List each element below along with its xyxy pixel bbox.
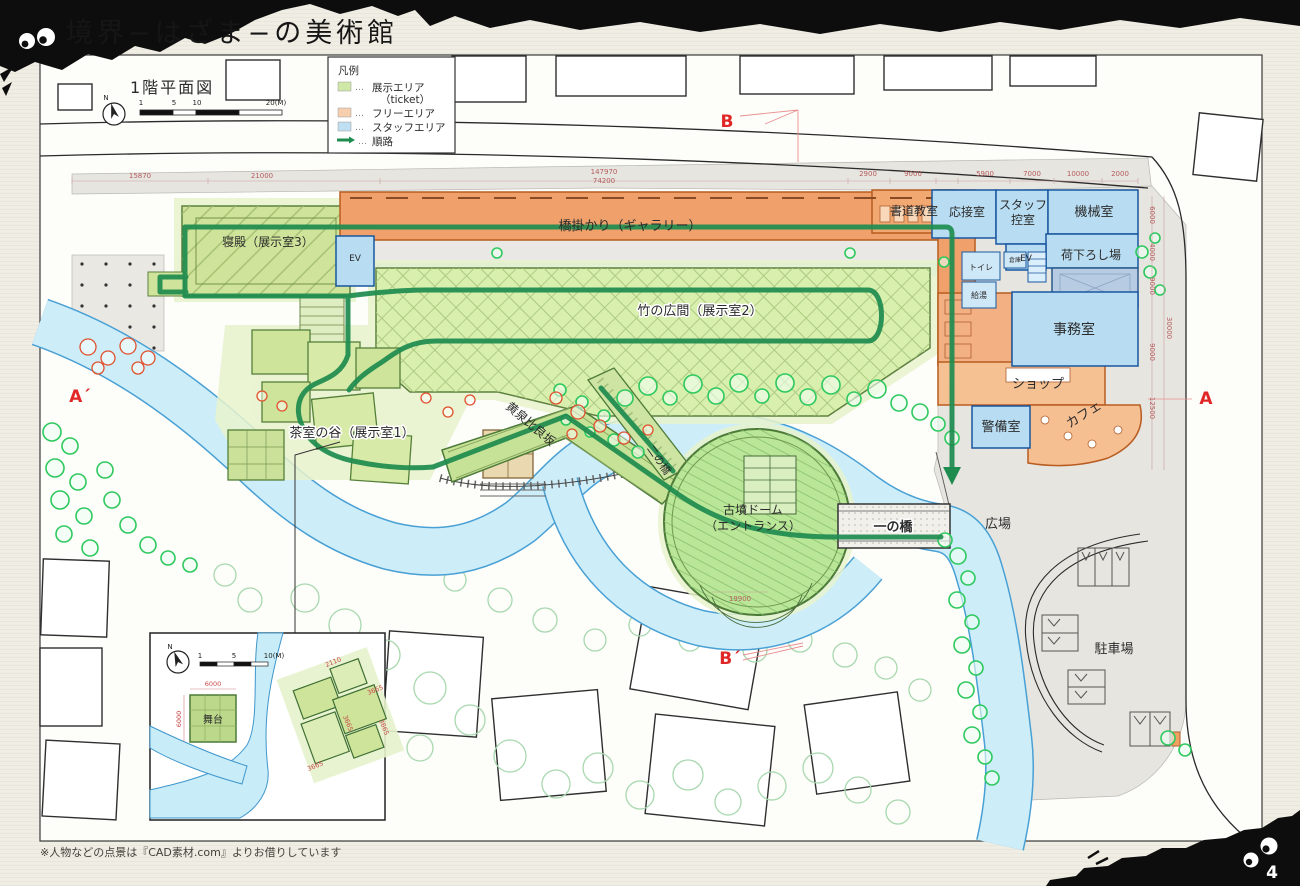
- svg-text:…: …: [355, 109, 364, 119]
- label-shodo: 書道教室: [890, 203, 938, 218]
- label-chashitsu: 茶室の谷（展示室1）: [289, 425, 414, 441]
- svg-text:…: …: [358, 137, 367, 147]
- svg-text:12500: 12500: [1148, 397, 1156, 419]
- site-plan-drawing: 15870 21000 147970 74200 2900 9000 5900 …: [0, 0, 1300, 886]
- inset-detail: N 1 5 10(M) 舞台 6000 6000 2110 3665: [150, 633, 404, 820]
- svg-text:6000: 6000: [1148, 206, 1156, 224]
- legend-label-free: フリーエリア: [372, 108, 435, 120]
- label-kofun-2: （エントランス）: [705, 519, 801, 533]
- svg-text:147970: 147970: [591, 168, 618, 176]
- plan-title: 1階平面図: [130, 78, 214, 97]
- svg-text:6000: 6000: [205, 680, 222, 688]
- page-title: 境界−はざま−の美術館: [66, 18, 398, 49]
- label-ev-east: EV: [1020, 254, 1033, 264]
- legend-label-staff: スタッフエリア: [372, 122, 446, 134]
- svg-text:9000: 9000: [1148, 277, 1156, 295]
- marker-a-prime: A´: [69, 387, 91, 407]
- label-staff-2: 控室: [1011, 212, 1035, 227]
- label-souko: 倉庫: [1009, 256, 1021, 264]
- page-number: 4: [1266, 863, 1278, 883]
- label-kikai: 機械室: [1074, 204, 1113, 220]
- label-chushajo: 駐車場: [1094, 642, 1133, 657]
- svg-text:5900: 5900: [976, 170, 994, 178]
- label-hiroba: 広場: [985, 517, 1011, 532]
- label-take-hiroma: 竹の広間（展示室2）: [637, 303, 762, 319]
- legend-title: 凡例: [338, 64, 359, 77]
- svg-text:2900: 2900: [859, 170, 877, 178]
- label-nioroshi: 荷下ろし場: [1061, 248, 1121, 262]
- marker-b: B: [721, 112, 734, 132]
- legend-label-ticket: （ticket）: [380, 94, 430, 106]
- presentation-page: 15870 21000 147970 74200 2900 9000 5900 …: [0, 0, 1300, 886]
- svg-text:9000: 9000: [904, 170, 922, 178]
- svg-text:20(M): 20(M): [266, 99, 287, 107]
- label-kyuto: 給湯: [971, 290, 987, 300]
- label-shinden: 寝殿（展示室3）: [222, 234, 314, 249]
- marker-a: A: [1199, 389, 1213, 409]
- svg-text:10000: 10000: [1067, 170, 1089, 178]
- svg-text:5: 5: [232, 652, 236, 660]
- legend-swatch-exhibit: [338, 82, 351, 91]
- svg-text:30000: 30000: [1165, 317, 1173, 339]
- label-butai: 舞台: [203, 713, 223, 726]
- label-toilet: トイレ: [969, 263, 993, 272]
- legend-swatch-staff: [338, 122, 351, 131]
- svg-text:74200: 74200: [593, 177, 615, 185]
- label-kofun-1: 古墳ドーム: [723, 502, 783, 517]
- svg-text:15870: 15870: [129, 172, 151, 180]
- svg-text:1: 1: [198, 652, 202, 660]
- svg-text:4000: 4000: [1148, 243, 1156, 261]
- svg-text:7000: 7000: [1023, 170, 1041, 178]
- svg-text:…: …: [355, 123, 364, 133]
- label-jimusho: 事務室: [1053, 321, 1095, 338]
- svg-text:21000: 21000: [251, 172, 273, 180]
- label-ichinohashi: 一の橋: [873, 519, 913, 535]
- svg-text:9000: 9000: [1148, 343, 1156, 361]
- svg-text:N: N: [167, 643, 172, 651]
- svg-text:2000: 2000: [1111, 170, 1129, 178]
- svg-text:1: 1: [139, 99, 143, 107]
- claw-marks-icon: [1088, 851, 1108, 864]
- inset-scale-bar: [200, 662, 268, 666]
- svg-text:10(M): 10(M): [264, 652, 285, 660]
- marker-b-prime: B´: [719, 649, 740, 669]
- label-keibi: 警備室: [981, 419, 1020, 435]
- north-label: N: [103, 94, 108, 102]
- legend-label-exhibit: 展示エリア: [372, 82, 425, 94]
- label-ev-west: EV: [349, 254, 362, 264]
- label-osetsu: 応接室: [949, 204, 985, 219]
- legend-label-route: 順路: [372, 135, 393, 148]
- credit-note: ※人物などの点景は『CAD素材.com』よりお借りしています: [40, 845, 341, 859]
- svg-text:10: 10: [193, 99, 202, 107]
- svg-text:5: 5: [172, 99, 176, 107]
- svg-text:19900: 19900: [729, 595, 751, 603]
- legend-swatch-free: [338, 108, 351, 117]
- label-staff-1: スタッフ: [999, 198, 1047, 212]
- label-gallery: 橋掛かり（ギャラリー）: [558, 219, 701, 234]
- label-shop: ショップ: [1012, 377, 1064, 392]
- scale-bar: [140, 110, 282, 115]
- svg-text:…: …: [355, 83, 364, 93]
- legend: 凡例 … 展示エリア （ticket） … フリーエリア … スタッフエリア ……: [328, 57, 455, 153]
- svg-text:6000: 6000: [175, 711, 183, 728]
